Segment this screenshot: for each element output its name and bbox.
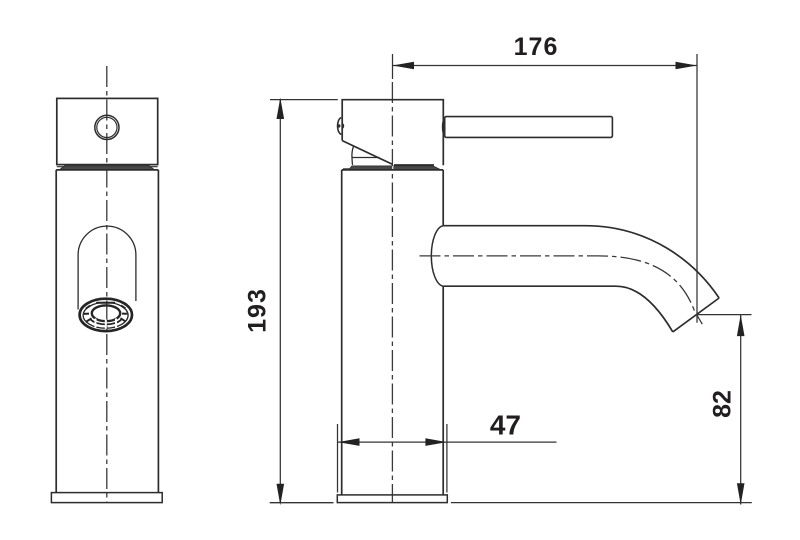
svg-text:47: 47: [490, 410, 521, 441]
svg-text:176: 176: [514, 33, 559, 61]
svg-text:193: 193: [244, 288, 272, 333]
svg-text:82: 82: [709, 390, 737, 418]
